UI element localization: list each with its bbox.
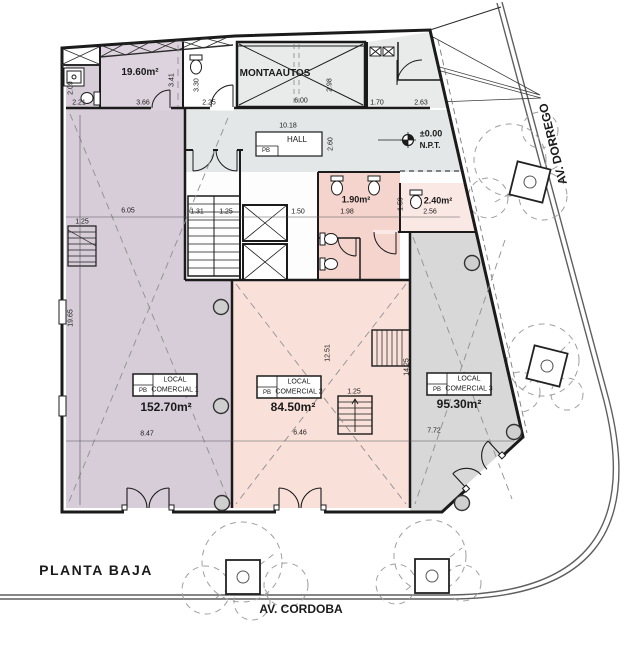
local1-sign-line1: LOCAL xyxy=(164,377,187,384)
planter-bottom-2 xyxy=(415,559,449,593)
dim-2-21: 2.21 xyxy=(72,100,86,107)
elevator-shaft-2 xyxy=(243,244,287,280)
dim-2-09: 2.09 xyxy=(68,81,75,95)
dim-12-51: 12.51 xyxy=(325,344,332,362)
local2-sign-line2: COMERCIAL 2 xyxy=(275,389,322,396)
toilet-icon-bath2 xyxy=(410,190,422,209)
local2-sign-line1: LOCAL xyxy=(288,379,311,386)
montaautos-label: MONTAAUTOS xyxy=(240,69,311,79)
local3-sign-line2: COMERCIAL 3 xyxy=(445,386,492,393)
toilet-icon-wc-low-b xyxy=(320,258,338,270)
dim-19-65: 19.65 xyxy=(68,309,75,327)
local2-area: 84.50m² xyxy=(271,401,316,413)
dim-1-25-local1: 1.25 xyxy=(75,219,89,226)
toilet-icon-bath1-a xyxy=(331,176,343,195)
dim-6-00: 6.00 xyxy=(294,98,308,105)
local3-sign-level: PB xyxy=(433,387,441,393)
dim-2-98: 2.98 xyxy=(327,78,334,92)
sidewalk-hatch-northeast xyxy=(433,37,541,102)
planter-right-2 xyxy=(526,345,567,386)
dim-8-47: 8.47 xyxy=(140,431,154,438)
dim-1-59: 1.59 xyxy=(398,197,405,211)
dim-2-63: 2.63 xyxy=(414,100,428,107)
local1-sign-line2: COMERCIAL 1 xyxy=(151,387,198,394)
dim-1-98: 1.98 xyxy=(340,209,354,216)
level-value: ±0.00 xyxy=(420,130,442,139)
local2-sign-level: PB xyxy=(263,390,271,396)
dim-2-56: 2.56 xyxy=(423,209,437,216)
dim-3-41: 3.41 xyxy=(169,73,176,87)
dim-7-72: 7.72 xyxy=(427,428,441,435)
hall-level-label: PB xyxy=(262,148,270,154)
local3-area: 95.30m² xyxy=(437,398,482,410)
dim-6-46: 6.46 xyxy=(293,430,307,437)
dim-3-30: 3.30 xyxy=(194,78,201,92)
area-label-bath1: 1.90m² xyxy=(342,196,371,205)
dim-1-50: 1.50 xyxy=(291,209,305,216)
level-datum: N.P.T. xyxy=(420,142,441,150)
planter-bottom-1 xyxy=(226,560,260,594)
dim-6-05: 6.05 xyxy=(121,208,135,215)
dim-2-60: 2.60 xyxy=(328,137,335,151)
local3-sign-line1: LOCAL xyxy=(458,376,481,383)
dim-10-18: 10.18 xyxy=(279,123,297,130)
floor-title: PLANTA BAJA xyxy=(39,563,153,577)
lot-line xyxy=(430,7,501,30)
dim-2-25: 2.25 xyxy=(202,100,216,107)
toilet-icon-wc-top xyxy=(190,55,202,74)
area-label-bath2: 2.40m² xyxy=(424,197,453,206)
dim-3-66: 3.66 xyxy=(136,100,150,107)
dim-1-70: 1.70 xyxy=(370,100,384,107)
toilet-icon-bath1-b xyxy=(368,176,380,195)
local1-sign-level: PB xyxy=(139,388,147,394)
planter-right-1 xyxy=(509,161,550,202)
hall-label: HALL xyxy=(287,136,307,144)
toilet-icon-wc-low-a xyxy=(320,233,338,245)
street-label-cordoba: AV. CORDOBA xyxy=(259,603,342,615)
area-label-19-60: 19.60m² xyxy=(121,68,158,78)
dim-1-31: 1.31 xyxy=(190,209,204,216)
elevator-shaft-1 xyxy=(243,205,287,241)
dim-14-25: 14.25 xyxy=(404,358,411,376)
floor-plan: MONTAAUTOS 19.60m² HALL PB ±0.00 N.P.T. … xyxy=(0,0,640,664)
local1-area: 152.70m² xyxy=(140,401,191,413)
dim-1-25-local2: 1.25 xyxy=(347,389,361,396)
dim-1-25-core: 1.25 xyxy=(219,209,233,216)
